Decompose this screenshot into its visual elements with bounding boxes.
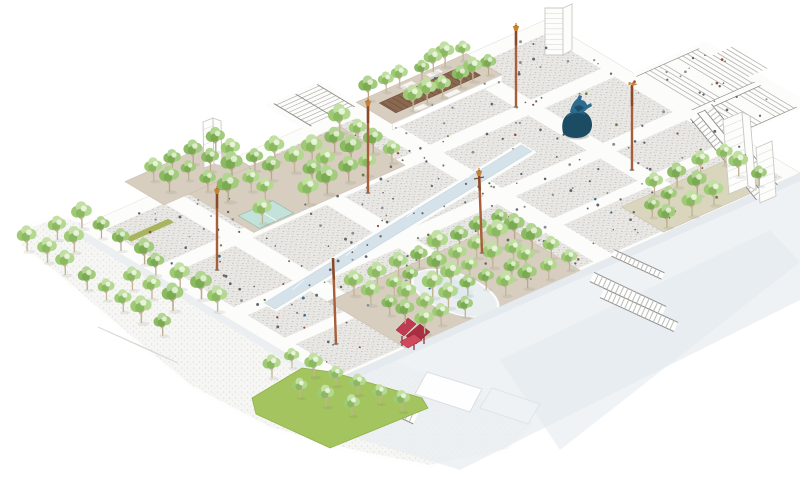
plaza-illustration-canvas: [0, 0, 800, 497]
tower-north: [545, 4, 572, 55]
plaza-axonometric-rendering: [0, 0, 800, 497]
